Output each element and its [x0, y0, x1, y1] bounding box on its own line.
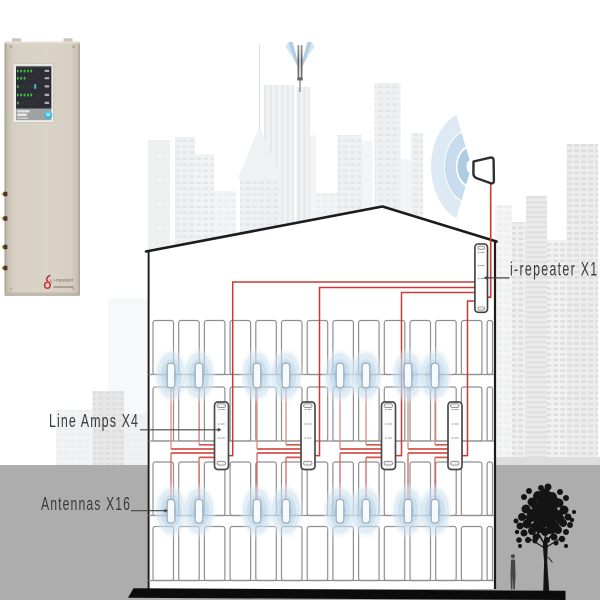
- svg-text:Antennas X16: Antennas X16: [41, 494, 131, 514]
- svg-text:i-repeater X1: i-repeater X1: [510, 260, 599, 281]
- svg-text:i-repeater: i-repeater: [54, 278, 74, 283]
- svg-text:Line Amps X4: Line Amps X4: [49, 411, 139, 431]
